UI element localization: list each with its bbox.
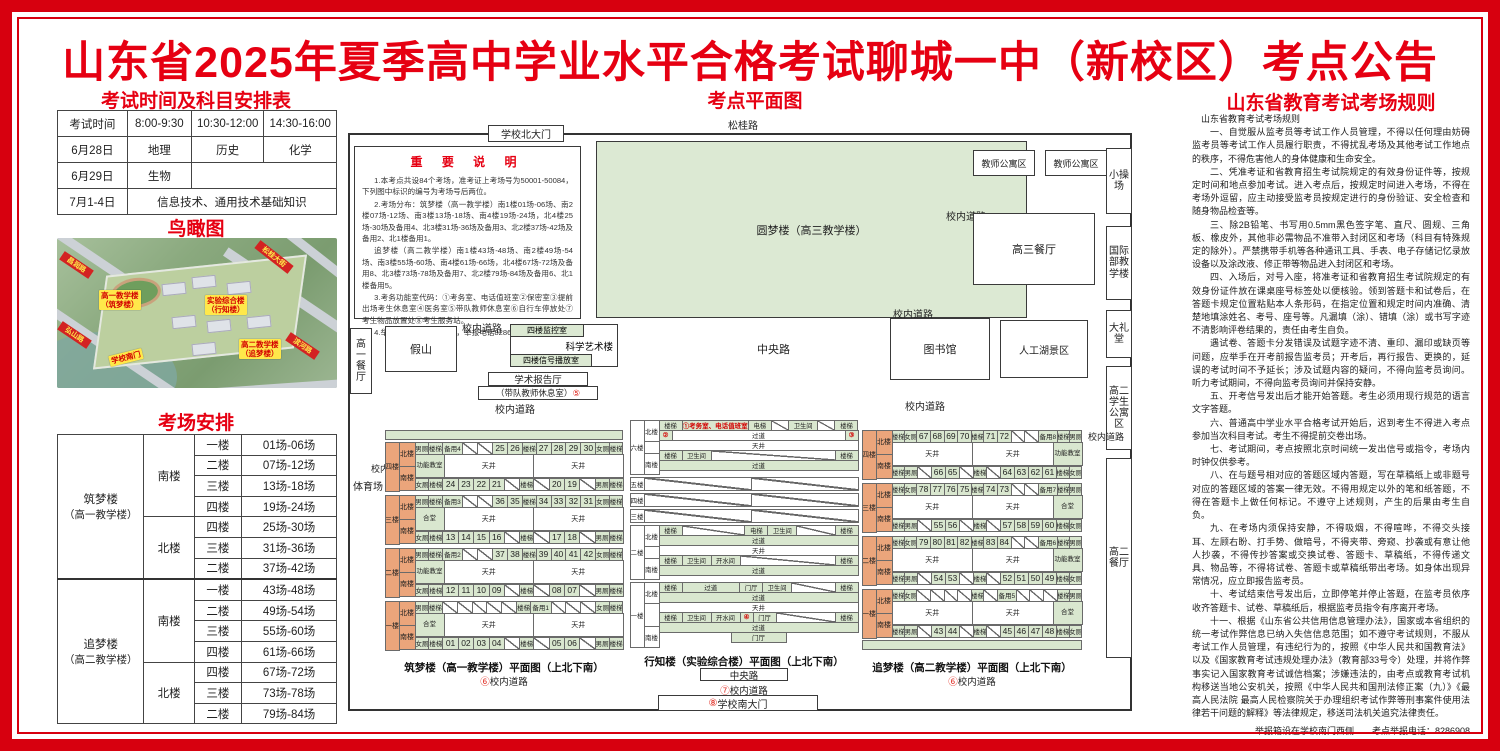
- plan-cell: [986, 572, 1001, 585]
- plan-cell: [644, 493, 752, 507]
- plan-floor-block: 二楼北楼南楼楼梯电梯卫生间楼梯过道天井楼梯卫生间开水间楼梯过道: [630, 525, 858, 579]
- plan-cell: 过道: [659, 565, 859, 576]
- rules-paragraph: 二、凭准考证和省教育招生考试院规定的有效身份证件等，按规定时间和地点参加考试。进…: [1192, 166, 1470, 219]
- aerial-label-line: 高一教学楼: [101, 291, 139, 300]
- aerial-title: 鸟瞰图: [55, 214, 337, 241]
- arrangement-wing-cell: 北楼: [144, 517, 194, 579]
- plan-cell: 楼梯: [1056, 466, 1070, 479]
- signal-room: 四楼信号播放室: [510, 354, 592, 367]
- code-5: ⑤: [572, 388, 580, 399]
- plan-mid-row: 天井天井合堂: [892, 495, 1082, 519]
- plan-north-row: 楼梯女厕楼梯备用5楼梯男厕: [892, 589, 1082, 601]
- code-6-right: ⑥: [948, 677, 958, 688]
- plan-room-cell: 57: [1000, 519, 1015, 532]
- plan-wing-south: 南楼: [399, 625, 416, 650]
- plan-cell: [504, 637, 520, 650]
- frame-top: [0, 0, 1500, 12]
- plan-floor-rows: 楼梯电梯卫生间楼梯过道天井楼梯卫生间开水间楼梯过道: [659, 525, 858, 579]
- rules-paragraph: 十一、根据《山东省公共信用信息管理办法》，国家或本省组织的统一考试作弊信息已纳入…: [1192, 615, 1470, 721]
- plan-row: 天井: [659, 602, 858, 612]
- plan-cell: [959, 625, 974, 638]
- arrangement-range-cell: 07场-12场: [242, 455, 337, 476]
- plan-room-cell: 13: [442, 531, 458, 544]
- aerial-view-image: 昌润路松桂大街弘山路滨河路高一教学楼（筑梦楼）实验综合楼（行知楼）高二教学楼（追…: [57, 238, 337, 388]
- plan-patio-cell: 天井: [444, 454, 535, 478]
- plan-row: [644, 509, 858, 522]
- plan-floor-label: 一楼: [385, 601, 400, 651]
- arrangement-floor-cell: 三楼: [194, 537, 241, 558]
- zhuimeng-road-label: 校内道路: [958, 677, 996, 688]
- plan-cell: 女厕: [1069, 572, 1083, 585]
- plan-mid-label: 合堂: [415, 507, 445, 531]
- plan-cell: 楼梯: [1056, 625, 1070, 638]
- arrangement-floor-cell: 四楼: [194, 641, 241, 662]
- plan-room-cell: 18: [564, 531, 580, 544]
- plan-floor-block: 二楼北楼南楼男厕楼梯备用23738楼梯39404142女厕楼梯功能教室天井天井女…: [385, 548, 623, 597]
- aerial-building-label: 高一教学楼（筑梦楼）: [99, 290, 141, 310]
- plan-wing-south: 南楼: [644, 558, 660, 580]
- plan-south-row: 女厕楼梯24232221楼梯2019男厕楼梯: [415, 478, 623, 490]
- plan-row: 天井: [659, 440, 858, 450]
- plan-cell: [917, 466, 932, 479]
- plan-room-cell: 52: [1000, 572, 1015, 585]
- plan-floor-rows: 男厕楼梯备用23738楼梯39404142女厕楼梯功能教室天井天井女厕楼梯121…: [415, 548, 623, 597]
- plan-floor-block: 三楼北楼南楼楼梯女厕78777675楼梯7473备用7楼梯男厕天井天井合堂楼梯男…: [862, 483, 1082, 532]
- aerial-building: [191, 275, 216, 289]
- plan-cell: 楼梯: [428, 531, 443, 544]
- inner-road-vertical-left: 校内道路: [370, 462, 383, 476]
- plan-floor-block: 二楼北楼南楼楼梯女厕79808182楼梯8384备用6楼梯男厕天井天井功能教室楼…: [862, 536, 1082, 585]
- arrangement-title: 考场安排: [55, 408, 337, 435]
- poster-title: 山东省2025年夏季高中学业水平合格考试聊城一中（新校区）考点公告: [0, 28, 1500, 90]
- zhumeng-caption: 筑梦楼（高一教学楼）平面图（上北下南）: [385, 660, 623, 675]
- plan-mid-label: 功能教室: [415, 560, 445, 584]
- plan-room-cell: 03: [473, 637, 489, 650]
- plan-wing-north: 北楼: [876, 589, 893, 614]
- building-name-line: 追梦楼: [60, 636, 141, 652]
- plan-mid-label: 功能教室: [415, 454, 445, 478]
- plan-room-cell: 66: [931, 466, 946, 479]
- schedule-cell: 历史: [191, 137, 264, 163]
- plan-room-cell: 50: [1028, 572, 1043, 585]
- plan-floor-block: 一楼北楼南楼楼梯女厕楼梯备用5楼梯男厕天井天井合堂楼梯男厕4344楼梯45464…: [862, 589, 1082, 638]
- arrangement-range-cell: 79场-84场: [242, 703, 337, 724]
- plan-cell: 女厕: [1069, 519, 1083, 532]
- arrangement-floor-cell: 三楼: [194, 683, 241, 704]
- schedule-row: 6月28日地理历史化学: [58, 137, 337, 163]
- plan-room-cell: 02: [458, 637, 474, 650]
- arrangement-range-cell: 01场-06场: [242, 435, 337, 456]
- plan-cell: 女厕: [415, 637, 430, 650]
- inner-road-label-1: 校内道路: [462, 320, 502, 335]
- plan-room-cell: 16: [489, 531, 505, 544]
- plan-mid-row: 天井天井功能教室: [892, 442, 1082, 466]
- plan-room-cell: 62: [1028, 466, 1043, 479]
- rules-paragraph: 四、入场后，对号入座，将准考证和省教育招生考试院规定的有效身份证件放在课桌座号标…: [1192, 271, 1470, 337]
- auditorium: 大礼堂: [1106, 310, 1132, 358]
- plan-room-cell: 48: [1042, 625, 1057, 638]
- plan-room-cell: 12: [442, 584, 458, 597]
- plan-cell: [533, 531, 549, 544]
- plan-cell: 楼梯: [609, 478, 624, 491]
- arrangement-floor-cell: 一楼: [194, 435, 241, 456]
- sci-art-complex: 四楼监控室 科学艺术楼 四楼信号播放室: [510, 324, 618, 367]
- plan-room-cell: 55: [931, 519, 946, 532]
- arrangement-range-cell: 13场-18场: [242, 476, 337, 497]
- notes-title: 重 要 说 明: [362, 153, 573, 170]
- map-title: 考点平面图: [620, 86, 890, 113]
- plan-room-cell: 45: [1000, 625, 1015, 638]
- arrangement-floor-cell: 二楼: [194, 558, 241, 579]
- plan-room-cell: 15: [473, 531, 489, 544]
- plan-patio-cell: 天井: [972, 495, 1054, 519]
- rules-title: 山东省教育考试考场规则: [1195, 88, 1467, 115]
- plan-row: 过道: [659, 535, 858, 545]
- plan-floor-label: 二楼: [862, 536, 877, 586]
- plan-mid-row: 天井天井合堂: [892, 601, 1082, 625]
- schedule-header-cell: 14:30-16:00: [264, 111, 337, 137]
- plan-south-row: 楼梯男厕5556楼梯57585960楼梯女厕: [892, 519, 1082, 531]
- plan-cell: [959, 519, 974, 532]
- plan-wing-col: 北楼南楼: [876, 589, 892, 638]
- frame-bottom: [0, 739, 1500, 751]
- plan-cell: 楼梯: [892, 625, 906, 638]
- inner-road-label-3: 校内道路: [905, 398, 945, 413]
- plan-row: 楼梯卫生间开水间楼梯: [659, 555, 858, 565]
- plan-mid-row: 功能教室天井天井: [415, 454, 623, 478]
- plan-wing-north: 北楼: [399, 495, 416, 520]
- aerial-building: [161, 282, 186, 296]
- building-name-line: （高二教学楼）: [60, 652, 141, 667]
- plan-cell: [579, 531, 595, 544]
- zhuimeng-caption: 追梦楼（高二教学楼）平面图（上北下南）: [862, 660, 1082, 675]
- plan-cell: 女厕: [415, 478, 430, 491]
- plan-north-row: 楼梯女厕67686970楼梯7172备用8楼梯男厕: [892, 430, 1082, 442]
- code-6-left: ⑥: [480, 677, 490, 688]
- plan-floor-rows: 男厕楼梯备用33635楼梯34333231女厕楼梯合堂天井天井女厕楼梯13141…: [415, 495, 623, 544]
- plan-room-cell: 59: [1028, 519, 1043, 532]
- plan-cell: 男厕: [595, 637, 610, 650]
- plan-room-cell: 61: [1042, 466, 1057, 479]
- plan-wing-col: 北楼南楼: [399, 495, 415, 544]
- plan-north-row: 男厕楼梯楼梯备用1女厕楼梯: [415, 601, 623, 613]
- zhumeng-road: ⑥校内道路: [385, 674, 623, 688]
- plan-cell: [986, 625, 1001, 638]
- plan-room-cell: 65: [945, 466, 960, 479]
- arrangement-range-cell: 67场-72场: [242, 662, 337, 683]
- arrangement-row: 筑梦楼（高一教学楼）南楼一楼01场-06场: [58, 435, 337, 456]
- notes-paragraph: 追梦楼（高二教学楼）南1楼43场-48场、南2楼49场-54场、南3楼55场-6…: [362, 245, 573, 291]
- plan-cell: 男厕: [904, 625, 918, 638]
- plan-floor-label: 四楼: [630, 493, 645, 507]
- plan-floor-label: 二楼: [630, 525, 645, 580]
- rules-paragraph: 六、普通高中学业水平合格考试开始后，迟到考生不得进入考点参加当次科目考试。考生不…: [1192, 417, 1470, 443]
- plan-floor-block: 六楼北楼南楼楼梯①考务室、电话值班室电梯卫生间楼梯②过道③天井楼梯卫生间楼梯过道: [630, 420, 858, 474]
- plan-north-row: 楼梯女厕78777675楼梯7473备用7楼梯男厕: [892, 483, 1082, 495]
- lecture-hall: 学术报告厅: [488, 372, 588, 386]
- plan-floor-rows: 楼梯女厕67686970楼梯7172备用8楼梯男厕天井天井功能教室楼梯男厕666…: [892, 430, 1082, 479]
- aerial-building: [191, 342, 216, 356]
- plan-cell: 楼梯: [892, 572, 906, 585]
- plan-cell: 楼梯: [892, 519, 906, 532]
- plan-north-row: 男厕楼梯备用33635楼梯34333231女厕楼梯: [415, 495, 623, 507]
- teacher-apartment-2: 教师公寓区: [1045, 150, 1107, 176]
- plan-cell: 楼梯: [428, 584, 443, 597]
- plan-room-cell: 08: [549, 584, 565, 597]
- aerial-label-line: （追梦楼）: [241, 349, 279, 358]
- plan-cell: 女厕: [1069, 466, 1083, 479]
- rules-intro: 山东省教育考试考场规则: [1192, 113, 1470, 126]
- plan-cell: [751, 477, 859, 491]
- plan-cell: [504, 584, 520, 597]
- plan-cell: [504, 531, 520, 544]
- plan-floor-block: 一楼北楼南楼楼梯过道门厅卫生间楼梯过道天井楼梯卫生间开水间④门厅楼梯过道门厅: [630, 582, 858, 647]
- plan-mid-row: 天井天井功能教室: [892, 548, 1082, 572]
- aerial-building: [226, 281, 251, 295]
- plan-room-cell: 10: [473, 584, 489, 597]
- arrangement-range-cell: 73场-78场: [242, 683, 337, 704]
- plan-wing-spacer: [644, 546, 659, 558]
- plan-wing-north: 北楼: [644, 420, 660, 442]
- plan-cell: [917, 572, 932, 585]
- plan-room-cell: 11: [458, 584, 474, 597]
- plan-wing-col: 北楼南楼: [644, 420, 659, 474]
- rules-paragraph: 八、在与题号相对应的答题区域内答题，写在草稿纸上或非题号对应的答题区域的答案一律…: [1192, 469, 1470, 522]
- schedule-cell: 化学: [264, 137, 337, 163]
- plan-wing-north: 北楼: [399, 442, 416, 467]
- plan-cell: [533, 478, 549, 491]
- plan-floor-label: 二楼: [385, 548, 400, 598]
- plan-wing-north: 北楼: [876, 483, 893, 508]
- inner-road-label-mid: 校内道路: [945, 210, 971, 225]
- plan-floor-label: 四楼: [385, 442, 400, 492]
- north-gate-box: 学校北大门: [488, 125, 564, 142]
- rules-paragraph: 一、自觉服从监考员等考试工作人员管理，不得以任何理由妨碍监考员等考试工作人员履行…: [1192, 126, 1470, 166]
- plan-row: 楼梯电梯卫生间楼梯: [659, 525, 858, 535]
- plan-cell: 楼梯: [519, 584, 534, 597]
- plan-row: 过道: [659, 622, 858, 632]
- plan-mid-row: 功能教室天井天井: [415, 560, 623, 584]
- arrangement-range-cell: 25场-30场: [242, 517, 337, 538]
- plan-room-cell: 47: [1028, 625, 1043, 638]
- team-teacher-rest-label: （带队教师休息室）: [496, 387, 573, 399]
- aerial-label-line: （筑梦楼）: [101, 300, 139, 309]
- plan-floor-label: 一楼: [862, 589, 877, 639]
- schedule-cell: 7月1-4日: [58, 189, 128, 215]
- arrangement-floor-cell: 三楼: [194, 621, 241, 642]
- arrangement-floor-cell: 四楼: [194, 496, 241, 517]
- plan-room-cell: 64: [1000, 466, 1015, 479]
- plan-room-cell: 14: [458, 531, 474, 544]
- plan-row: 天井: [659, 545, 858, 555]
- rules-paragraph: 十、考试结束信号发出后，立即停笔并停止答题，在监考员依序收齐答题卡、试卷、草稿纸…: [1192, 588, 1470, 614]
- plan-floor-label: 五楼: [630, 477, 645, 491]
- plan-cell: [504, 478, 520, 491]
- library: 图书馆: [890, 318, 990, 380]
- arrangement-row: 追梦楼（高二教学楼）南楼一楼43场-48场: [58, 579, 337, 600]
- plan-patio-cell: 天井: [444, 507, 535, 531]
- schedule-cell: 信息技术、通用技术基础知识: [127, 189, 336, 215]
- gaoer-canteen: 高二餐厅: [1106, 458, 1132, 658]
- notes-paragraph: 1.本考点共设84个考场，准考证上考场号为50001-50084，下列图中标识的…: [362, 175, 573, 198]
- plan-south-row: 楼梯男厕4344楼梯45464748楼梯女厕: [892, 625, 1082, 637]
- plan-cell: 楼梯: [1056, 572, 1070, 585]
- plan-mid-label: 功能教室: [1053, 442, 1083, 466]
- arrangement-floor-cell: 三楼: [194, 476, 241, 497]
- inner-road-vertical-right: 校内道路: [1087, 430, 1101, 444]
- arrangement-building-cell: 筑梦楼（高一教学楼）: [58, 435, 144, 580]
- plan-cell: 楼梯: [609, 584, 624, 597]
- plan-wing-col: 北楼南楼: [399, 442, 415, 491]
- songgui-road-label: 松桂路: [728, 117, 758, 132]
- plan-cell: [579, 637, 595, 650]
- schedule-cell: 地理: [127, 137, 191, 163]
- plan-mid-label: 功能教室: [1053, 548, 1083, 572]
- plan-cell: 男厕: [595, 584, 610, 597]
- plan-floor-rows: 男厕楼梯备用42526楼梯27282930女厕楼梯功能教室天井天井女厕楼梯242…: [415, 442, 623, 491]
- schedule-header-row: 考试时间8:00-9:3010:30-12:0014:30-16:00: [58, 111, 337, 137]
- plan-cell: [986, 466, 1001, 479]
- plan-wing-south: 南楼: [399, 572, 416, 597]
- aerial-label-line: （行知楼）: [207, 305, 245, 314]
- plan-wing-north: 北楼: [399, 548, 416, 573]
- plan-wing-south: 南楼: [399, 466, 416, 491]
- schedule-header-cell: 10:30-12:00: [191, 111, 264, 137]
- frame-right: [1488, 0, 1500, 751]
- plan-floor-block: 三楼: [630, 509, 858, 522]
- plan-cell: 男厕: [595, 531, 610, 544]
- plan-floor-label: 一楼: [630, 582, 645, 648]
- zhumeng-floor-plan: 四楼北楼南楼男厕楼梯备用42526楼梯27282930女厕楼梯功能教室天井天井女…: [385, 430, 623, 654]
- plan-room-cell: 01: [442, 637, 458, 650]
- plan-floor-block: 四楼北楼南楼男厕楼梯备用42526楼梯27282930女厕楼梯功能教室天井天井女…: [385, 442, 623, 491]
- teacher-apartment-1: 教师公寓区: [973, 150, 1035, 176]
- south-gate-box: ⑧学校南大门: [658, 695, 818, 711]
- zhuimeng-floor-plan: 四楼北楼南楼楼梯女厕67686970楼梯7172备用8楼梯男厕天井天井功能教室楼…: [862, 430, 1082, 650]
- plan-wing-south: 南楼: [876, 560, 893, 585]
- central-road-label: 中央路: [757, 341, 790, 357]
- important-notes-box: 重 要 说 明 1.本考点共设84个考场，准考证上考场号为50001-50084…: [354, 146, 581, 319]
- plan-room-cell: 46: [1014, 625, 1029, 638]
- plan-cell: 楼梯: [519, 637, 534, 650]
- arrangement-range-cell: 37场-42场: [242, 558, 337, 579]
- plan-room-cell: 22: [473, 478, 489, 491]
- plan-room-cell: 21: [489, 478, 505, 491]
- stadium-label: 体育场: [352, 480, 366, 495]
- aerial-building-label: 实验综合楼（行知楼）: [205, 295, 247, 315]
- plan-patio-cell: 天井: [533, 454, 624, 478]
- plan-wing-south: 南楼: [644, 453, 660, 475]
- plan-room-cell: 49: [1042, 572, 1057, 585]
- plan-south-row: 女厕楼梯13141516楼梯1718男厕楼梯: [415, 531, 623, 543]
- artificial-lake: 人工湖景区: [1000, 320, 1088, 378]
- plan-patio-cell: 天井: [972, 601, 1054, 625]
- arrangement-floor-cell: 一楼: [194, 579, 241, 600]
- arrangement-range-cell: 31场-36场: [242, 537, 337, 558]
- plan-wing-south: 南楼: [876, 507, 893, 532]
- plan-cell: [959, 466, 974, 479]
- plan-cell: 女厕: [415, 531, 430, 544]
- rules-paragraph: 遇试卷、答题卡分发错误及试题字迹不清、重印、漏印或缺页等问题，应举手在开考前报告…: [1192, 337, 1470, 390]
- plan-row: 楼梯①考务室、电话值班室电梯卫生间楼梯: [659, 420, 858, 430]
- rules-paragraph: 五、开考信号发出后才能开始答题。考生必须用现行规范的语言文字答题。: [1192, 390, 1470, 416]
- aerial-label-line: 高二教学楼: [241, 340, 279, 349]
- plan-corridor-strip: [862, 640, 1082, 650]
- schedule-table: 考试时间8:00-9:3010:30-12:0014:30-16:006月28日…: [57, 110, 337, 215]
- report-footer: 举报箱设在学校南门西侧 考点举报电话：8286908: [1192, 724, 1470, 737]
- plan-cell: 楼梯: [973, 625, 987, 638]
- plan-cell: 楼梯: [519, 478, 534, 491]
- plan-north-row: 男厕楼梯备用42526楼梯27282930女厕楼梯: [415, 442, 623, 454]
- arrangement-range-cell: 19场-24场: [242, 496, 337, 517]
- plan-south-row: 楼梯男厕6665楼梯64636261楼梯女厕: [892, 466, 1082, 478]
- zhuimeng-road: ⑥校内道路: [862, 674, 1082, 688]
- plan-patio-cell: 天井: [972, 548, 1054, 572]
- aerial-label-line: 实验综合楼: [207, 296, 245, 305]
- rockery: 假山: [385, 326, 457, 372]
- plan-corridor-strip: [385, 430, 623, 440]
- plan-cell: 楼梯: [609, 531, 624, 544]
- plan-cell: [533, 637, 549, 650]
- plan-row: 楼梯过道门厅卫生间楼梯: [659, 582, 858, 592]
- plan-floor-rows: [644, 509, 858, 522]
- plan-cell: 楼梯: [973, 466, 987, 479]
- sci-art-building: 科学艺术楼: [511, 336, 617, 355]
- code-8: ⑧: [709, 698, 718, 709]
- plan-floor-block: 四楼北楼南楼楼梯女厕67686970楼梯7172备用8楼梯男厕天井天井功能教室楼…: [862, 430, 1082, 479]
- schedule-header-cell: 考试时间: [58, 111, 128, 137]
- building-name-line: 筑梦楼: [60, 491, 141, 507]
- plan-cell: [986, 519, 1001, 532]
- plan-room-cell: 06: [564, 637, 580, 650]
- plan-room-cell: 05: [549, 637, 565, 650]
- plan-cell: [644, 477, 752, 491]
- arrangement-floor-cell: 二楼: [194, 455, 241, 476]
- plan-floor-label: 六楼: [630, 420, 645, 475]
- plan-mid-row: 合堂天井天井: [415, 507, 623, 531]
- aerial-building: [206, 319, 231, 333]
- arrangement-building-cell: 追梦楼（高二教学楼）: [58, 579, 144, 724]
- plan-row: 过道: [659, 565, 858, 575]
- plan-floor-rows: 楼梯女厕楼梯备用5楼梯男厕天井天井合堂楼梯男厕4344楼梯45464748楼梯女…: [892, 589, 1082, 638]
- gaoyi-canteen: 高一餐厅: [350, 328, 372, 394]
- schedule-row: 7月1-4日信息技术、通用技术基础知识: [58, 189, 337, 215]
- plan-room-cell: 53: [945, 572, 960, 585]
- schedule-row: 6月29日生物: [58, 163, 337, 189]
- plan-wing-north: 北楼: [644, 582, 660, 604]
- plan-patio-cell: 天井: [892, 442, 974, 466]
- rules-paragraph: 九、在考场内须保持安静，不得吸烟，不得喧哗，不得交头接耳、左顾右盼、打手势、做暗…: [1192, 522, 1470, 588]
- arrangement-range-cell: 49场-54场: [242, 600, 337, 621]
- plan-row: 过道: [659, 592, 858, 602]
- schedule-cell: 6月28日: [58, 137, 128, 163]
- rules-paragraph: 三、除2B铅笔、书写用0.5mm黑色签字笔、直尺、圆规、三角板、橡皮外，其他非必…: [1192, 219, 1470, 272]
- plan-wing-south: 南楼: [644, 626, 660, 648]
- plan-wing-col: 北楼南楼: [399, 601, 415, 650]
- zhumeng-road-label: 校内道路: [490, 677, 528, 688]
- plan-floor-label: 三楼: [630, 509, 645, 523]
- aerial-building: [246, 315, 271, 329]
- plan-row: 门厅: [659, 632, 858, 642]
- plan-cell: [644, 509, 752, 523]
- plan-south-row: 女厕楼梯01020304楼梯0506男厕楼梯: [415, 637, 623, 649]
- plan-floor-block: 一楼北楼南楼男厕楼梯楼梯备用1女厕楼梯合堂天井天井女厕楼梯01020304楼梯0…: [385, 601, 623, 650]
- plan-wing-south: 南楼: [876, 454, 893, 479]
- plan-wing-spacer: [644, 441, 659, 453]
- schedule-cell: 6月29日: [58, 163, 128, 189]
- small-playground: 小操场: [1106, 148, 1132, 214]
- rules-body: 山东省教育考试考场规则一、自觉服从监考员等考试工作人员管理，不得以任何理由妨碍监…: [1192, 113, 1470, 737]
